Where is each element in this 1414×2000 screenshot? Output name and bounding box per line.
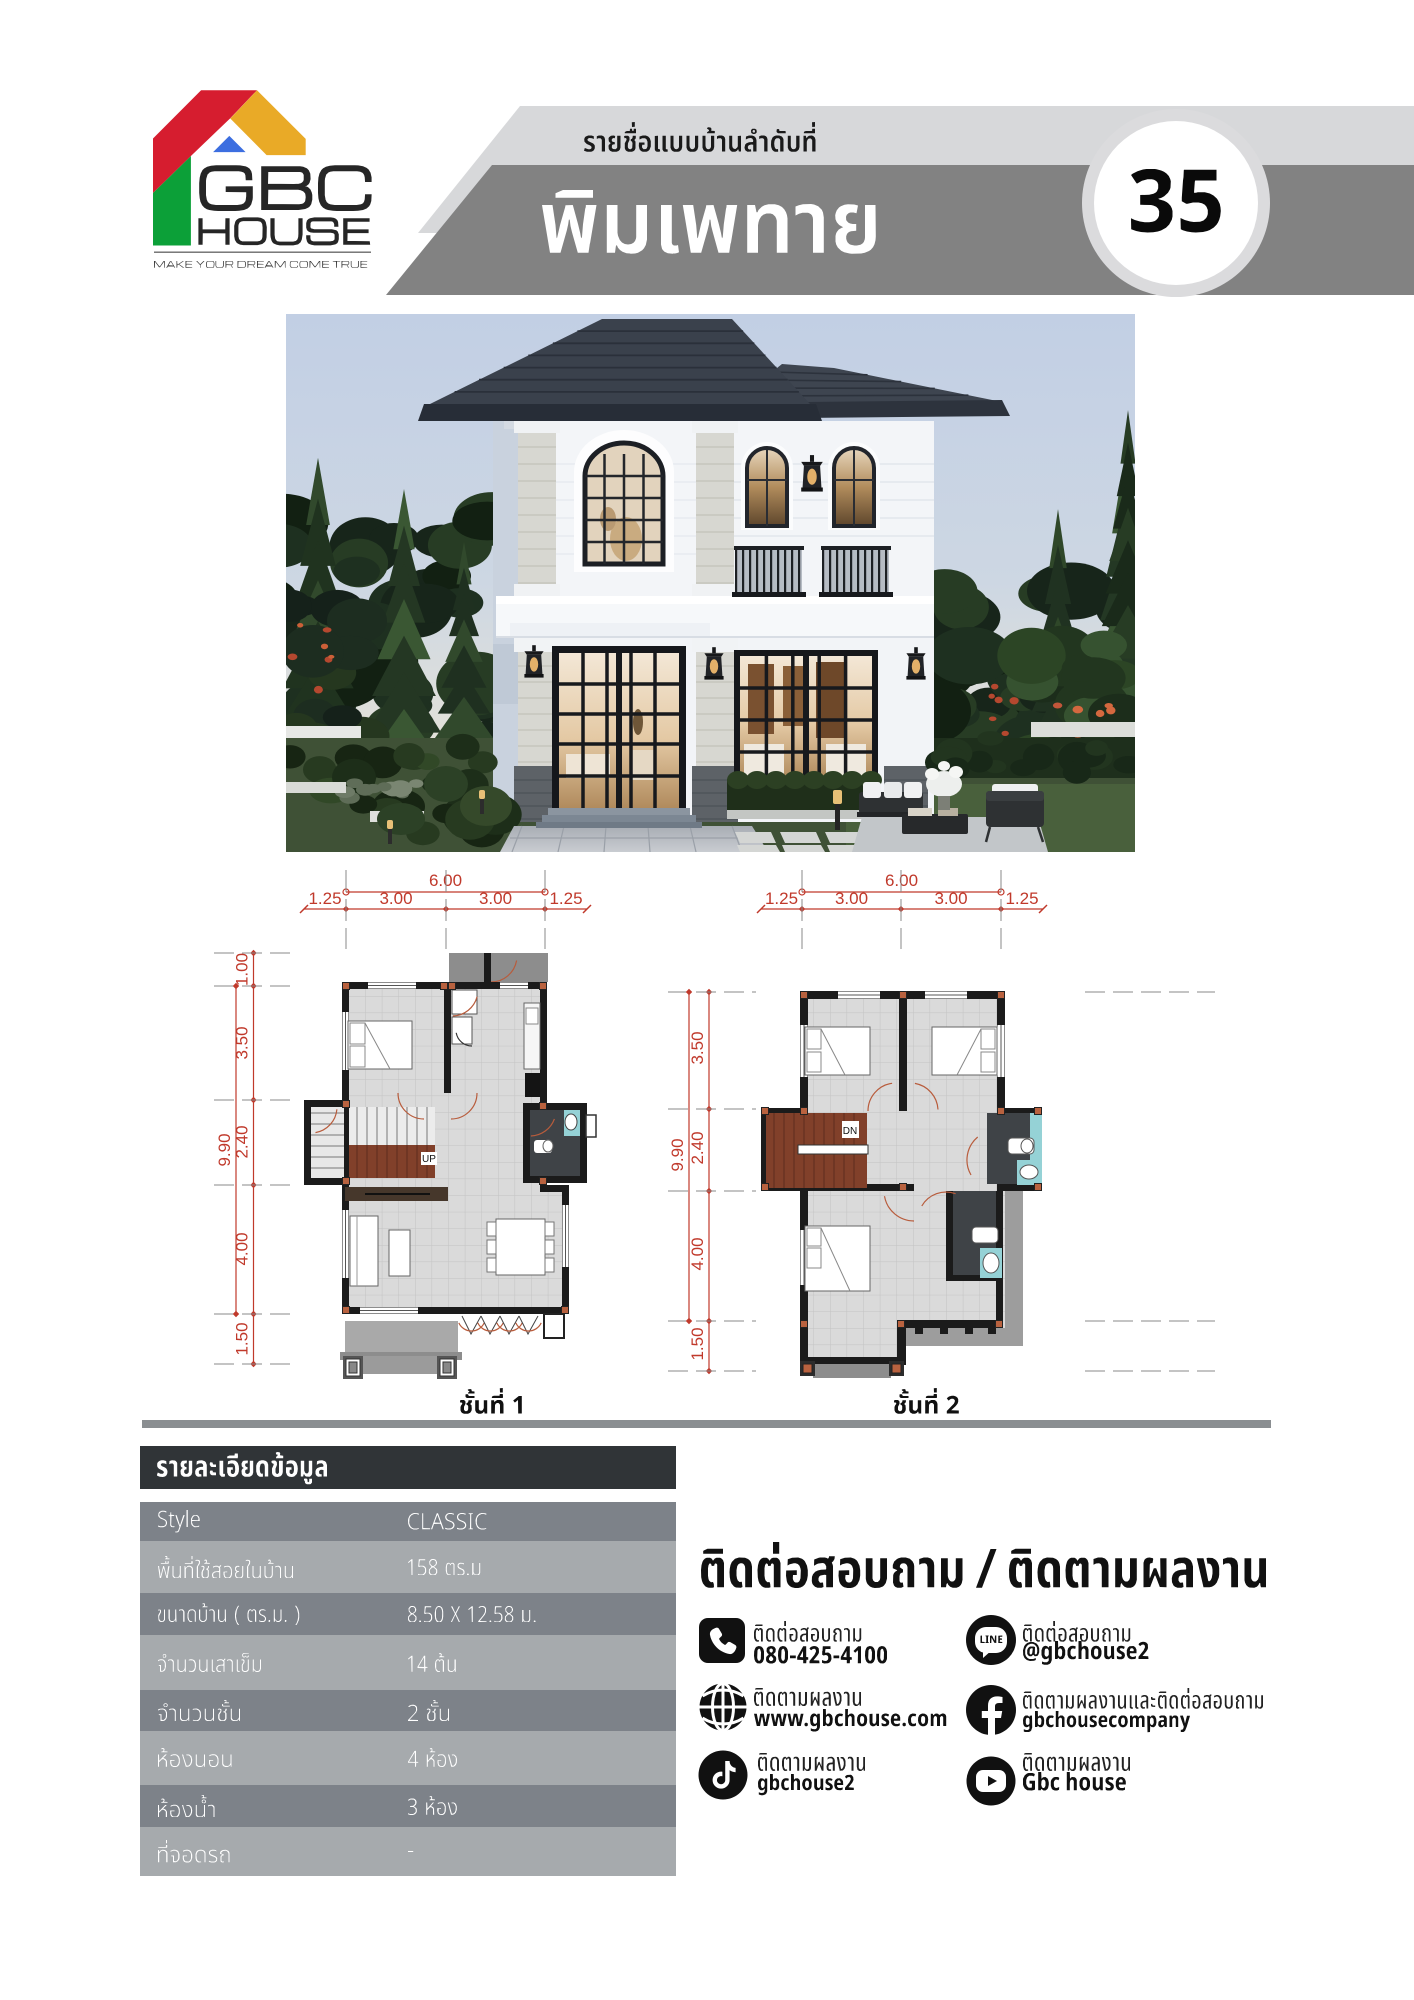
svg-text:3.50: 3.50 bbox=[688, 1031, 707, 1064]
svg-text:DN: DN bbox=[843, 1126, 857, 1137]
svg-text:2.40: 2.40 bbox=[233, 1125, 252, 1158]
svg-text:9.90: 9.90 bbox=[668, 1138, 687, 1171]
svg-text:1.50: 1.50 bbox=[688, 1327, 707, 1360]
svg-text:3.00: 3.00 bbox=[835, 889, 868, 908]
svg-text:9.90: 9.90 bbox=[215, 1133, 234, 1166]
svg-text:2.40: 2.40 bbox=[688, 1131, 707, 1164]
svg-text:4.00: 4.00 bbox=[688, 1237, 707, 1270]
svg-text:3.00: 3.00 bbox=[934, 889, 967, 908]
svg-text:1.25: 1.25 bbox=[308, 889, 341, 908]
svg-text:1.25: 1.25 bbox=[549, 889, 582, 908]
svg-text:UP: UP bbox=[422, 1154, 436, 1165]
svg-text:3.50: 3.50 bbox=[233, 1026, 252, 1059]
svg-text:1.25: 1.25 bbox=[1005, 889, 1038, 908]
svg-text:1.50: 1.50 bbox=[233, 1322, 252, 1355]
svg-text:1.25: 1.25 bbox=[765, 889, 798, 908]
svg-text:4.00: 4.00 bbox=[233, 1232, 252, 1265]
svg-text:3.00: 3.00 bbox=[479, 889, 512, 908]
svg-text:3.00: 3.00 bbox=[379, 889, 412, 908]
svg-text:1.00: 1.00 bbox=[233, 953, 252, 986]
